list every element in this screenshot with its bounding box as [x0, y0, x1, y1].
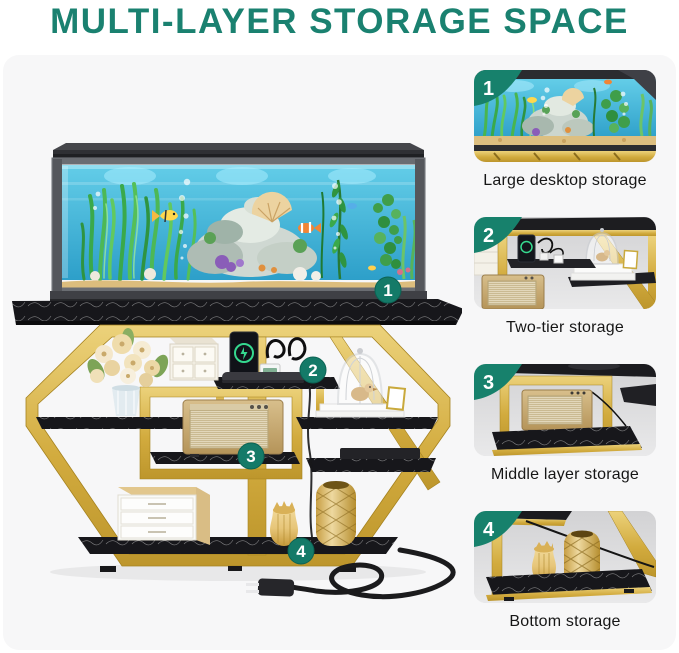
panel-2-image: 2	[474, 217, 656, 309]
panel-4-image: 4	[474, 511, 656, 603]
badge-2-number: 2	[308, 361, 317, 380]
right-lower-shelf	[306, 458, 436, 472]
two-tier-closeup-illustration: 2	[474, 217, 656, 309]
panel-3-number: 3	[483, 372, 494, 394]
badge-4-number: 4	[296, 542, 306, 561]
plug	[258, 578, 295, 596]
mini-drawer-unit	[170, 338, 218, 380]
cable	[289, 339, 305, 359]
media-device	[340, 448, 420, 459]
panel-1-image: 1	[474, 70, 656, 162]
badge-1-number: 1	[383, 281, 392, 300]
left-wing-shelf	[36, 417, 208, 429]
panel-3-image: 3	[474, 364, 656, 456]
page-title: MULTI-LAYER STORAGE SPACE	[0, 2, 679, 42]
panel-4-caption: Bottom storage	[474, 611, 656, 633]
feature-panel-3: 3 Middle layer storage	[474, 364, 656, 486]
panel-1-caption: Large desktop storage	[474, 170, 656, 192]
feature-panel-list: 1 Large desktop storage	[474, 70, 656, 653]
page: MULTI-LAYER STORAGE SPACE	[0, 0, 679, 653]
feature-panel-4: 4 Bottom storage	[474, 511, 656, 633]
badge-3-number: 3	[246, 447, 255, 466]
middle-shelf-closeup-illustration: 3	[474, 364, 656, 456]
bottom-shelf-closeup-illustration: 4	[474, 511, 656, 603]
panel-3-caption: Middle layer storage	[474, 464, 656, 486]
drawer-unit	[118, 487, 210, 545]
aquarium-closeup-illustration: 1	[474, 70, 656, 162]
feature-panel-2: 2 Two-tier storage	[474, 217, 656, 339]
panel-1-number: 1	[483, 78, 494, 100]
aquarium	[50, 143, 427, 301]
main-product-illustration: 1 2 3 4	[0, 58, 462, 653]
photo-frame-decor	[387, 387, 405, 410]
power-cable	[308, 376, 312, 537]
panel-2-caption: Two-tier storage	[474, 317, 656, 339]
main-product-figure: 1 2 3 4	[0, 58, 462, 653]
tabletop	[12, 299, 462, 325]
right-wing-shelf	[296, 417, 438, 429]
panel-4-number: 4	[483, 519, 495, 541]
speaker	[183, 400, 283, 457]
cable	[267, 340, 284, 358]
feature-panel-1: 1 Large desktop storage	[474, 70, 656, 192]
panel-2-number: 2	[483, 225, 494, 247]
